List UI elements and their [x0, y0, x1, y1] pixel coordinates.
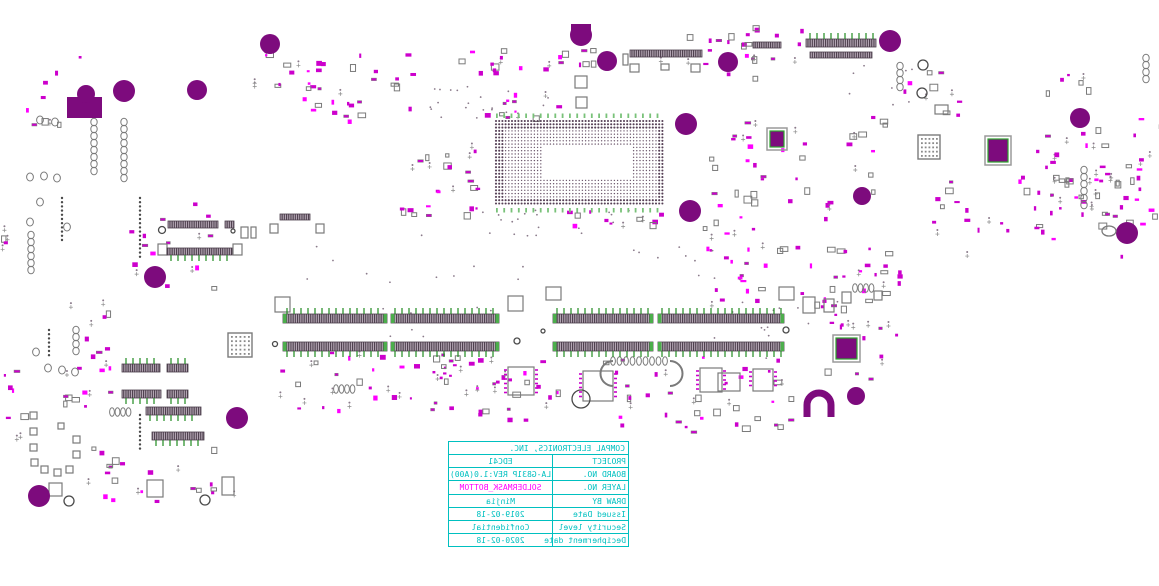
- bga-ball-pad: [658, 133, 660, 135]
- bga-ball-pad: [627, 186, 628, 187]
- bga-ball-pad: [505, 176, 506, 177]
- bga-ball-pad: [658, 176, 660, 178]
- smd-pad: [514, 111, 516, 113]
- smd-pad: [410, 397, 412, 399]
- component-outline: [233, 244, 242, 255]
- bga-ball-pad: [611, 140, 612, 141]
- fiducial-cross: [1088, 181, 1092, 185]
- bga-ball-pad: [655, 150, 656, 151]
- bga-ball-pad: [601, 127, 603, 129]
- bga-ball-pad: [652, 153, 653, 154]
- bga-ball-pad: [511, 137, 512, 138]
- smd-pad: [747, 247, 749, 251]
- bga-ball-pad: [524, 137, 525, 138]
- bga-ball-pad: [588, 130, 589, 131]
- bga-ball-pad: [563, 143, 564, 144]
- smd-pad: [753, 163, 757, 168]
- bga-ball-pad: [559, 137, 560, 138]
- via-dot: [297, 60, 299, 62]
- fiducial-cross: [69, 305, 73, 309]
- bga-ball-pad: [594, 120, 596, 122]
- bga-ball-pad: [575, 120, 577, 122]
- bga-ball-pad: [588, 134, 589, 135]
- smd-pad: [140, 490, 143, 493]
- smd-pad: [1018, 179, 1021, 183]
- bga-ball-pad: [540, 157, 541, 158]
- bga-ball-pad: [537, 183, 538, 184]
- bga-ball-pad: [515, 186, 516, 187]
- mounting-hole: [77, 85, 95, 103]
- bga-ball-pad: [661, 127, 663, 129]
- smd-pad: [1137, 176, 1141, 181]
- bga-ball-pad: [604, 180, 605, 181]
- bga-ball-pad: [633, 170, 634, 171]
- fiducial-cross: [846, 323, 850, 327]
- bga-ball-pad: [527, 167, 528, 168]
- bga-tick: [533, 208, 535, 213]
- bga-ball-pad: [610, 123, 612, 125]
- bga-ball-pad: [511, 127, 513, 129]
- bga-ball-pad: [505, 120, 507, 122]
- component-outline: [1153, 214, 1158, 219]
- bga-ball-pad: [505, 143, 506, 144]
- bga-ball-pad: [521, 127, 523, 129]
- bga-ball-pad: [658, 143, 660, 145]
- bga-ball-pad: [521, 140, 522, 141]
- component-outline: [270, 224, 278, 233]
- component-outline: [72, 397, 79, 402]
- via-dot: [1093, 143, 1095, 145]
- bga-ball-pad: [649, 143, 650, 144]
- via-dot: [6, 235, 8, 237]
- via-dot: [19, 432, 21, 434]
- smd-pad: [646, 393, 650, 397]
- bga-ball-pad: [517, 202, 519, 204]
- bga-ball-pad: [562, 202, 564, 204]
- bga-ball-pad: [588, 190, 589, 191]
- bga-ball-pad: [597, 202, 599, 204]
- smd-pad: [1140, 223, 1146, 226]
- fiducial-cross: [1081, 76, 1085, 80]
- bga-ball-pad: [636, 127, 638, 129]
- bga-ball-pad: [546, 123, 548, 125]
- bga-ball-pad: [595, 196, 596, 197]
- bga-ball-pad: [598, 196, 599, 197]
- bga-ball-pad: [505, 173, 506, 174]
- via-dot: [608, 211, 610, 213]
- bga-ball-pad: [566, 180, 567, 181]
- bga-tick: [547, 114, 549, 119]
- test-point-dot: [48, 329, 50, 331]
- bga-ball-pad: [498, 199, 500, 201]
- bga-ball-pad: [582, 140, 583, 141]
- bga-ball-pad: [617, 143, 618, 144]
- bga-ball-pad: [518, 130, 519, 131]
- bga-ball-pad: [505, 134, 506, 135]
- smd-pad: [776, 359, 780, 363]
- via-dot: [1091, 201, 1093, 203]
- bga-ball-pad: [527, 170, 528, 171]
- horseshoe-cutout-mark: [807, 393, 831, 417]
- smd-pad: [490, 63, 494, 66]
- bga-ball-pad: [521, 173, 522, 174]
- via-dot: [460, 366, 462, 368]
- cpu-bga-footprint: [495, 114, 664, 213]
- via-dot: [465, 107, 467, 109]
- bga-ball-pad: [517, 120, 519, 122]
- bga-ball-pad: [565, 199, 567, 201]
- via-dot: [936, 229, 938, 231]
- bga-ball-pad: [498, 196, 500, 198]
- smd-pad: [774, 424, 778, 427]
- bga-ball-pad: [553, 127, 555, 129]
- bga-tick: [598, 208, 600, 213]
- bga-ball-pad: [495, 146, 497, 148]
- via-dot: [767, 326, 769, 328]
- smd-pad: [470, 51, 475, 54]
- bga-ball-pad: [639, 202, 641, 204]
- bga-ball-pad: [636, 163, 637, 164]
- smd-pad: [1081, 132, 1086, 136]
- fiducial-cross: [428, 165, 432, 169]
- smd-pad: [372, 368, 374, 371]
- component-outline: [827, 247, 835, 252]
- bga-ball-pad: [566, 186, 567, 187]
- smd-pad: [476, 188, 481, 190]
- bga-ball-pad: [508, 143, 509, 144]
- bga-ball-pad: [521, 180, 522, 181]
- component-outline: [779, 287, 794, 300]
- bga-ball-pad: [511, 196, 512, 197]
- bga-ball-pad: [505, 183, 506, 184]
- oval-pad: [91, 125, 97, 133]
- component-outline: [426, 155, 429, 161]
- bga-tick: [554, 114, 556, 119]
- via-dot: [883, 281, 885, 283]
- bga-ball-pad: [495, 166, 497, 168]
- bga-ball-pad: [607, 127, 609, 129]
- oval-pad: [126, 408, 131, 416]
- smd-pad: [798, 42, 801, 46]
- bga-ball-pad: [604, 123, 606, 125]
- fiducial-cross: [761, 245, 765, 249]
- smd-pad: [558, 55, 562, 59]
- smd-pad: [337, 409, 340, 413]
- component-outline: [869, 173, 873, 177]
- bga-ball-pad: [527, 193, 528, 194]
- smd-pad: [297, 407, 301, 409]
- bga-ball-pad: [630, 130, 631, 131]
- via-dot: [1059, 197, 1061, 199]
- bga-ball-pad: [537, 130, 538, 131]
- bga-ball-pad: [623, 143, 624, 144]
- qfn-ball-pad: [240, 340, 242, 342]
- qfn-ball-pad: [929, 138, 931, 140]
- smd-pad: [841, 323, 844, 326]
- bga-ball-pad: [598, 134, 599, 135]
- via-dot: [1095, 189, 1097, 191]
- component-outline: [350, 65, 355, 72]
- bga-ball-pad: [501, 160, 503, 162]
- bga-ball-pad: [579, 137, 580, 138]
- component-outline: [92, 447, 96, 450]
- oval-pad: [121, 174, 127, 182]
- smd-pad: [834, 314, 837, 316]
- fiducial-cross: [880, 362, 884, 366]
- bga-ball-pad: [531, 176, 532, 177]
- component-outline: [687, 35, 693, 41]
- component-outline: [30, 428, 37, 435]
- bga-ball-pad: [514, 123, 516, 125]
- component-outline: [316, 224, 324, 233]
- bga-ball-pad: [643, 180, 644, 181]
- bga-ball-pad: [543, 183, 544, 184]
- bga-ball-pad: [585, 134, 586, 135]
- bga-ball-pad: [649, 170, 650, 171]
- mounting-hole: [570, 24, 592, 46]
- smd-pad: [508, 378, 512, 381]
- bga-ball-pad: [598, 130, 599, 131]
- bga-ball-pad: [572, 143, 573, 144]
- via-dot: [102, 299, 104, 301]
- qfn-ball-pad: [921, 147, 923, 149]
- bga-ball-pad: [565, 127, 567, 129]
- qfn-ball-pad: [248, 349, 250, 351]
- bga-ball-pad: [534, 160, 535, 161]
- smd-pad: [1120, 255, 1123, 259]
- bga-ball-pad: [643, 134, 644, 135]
- component-outline: [713, 165, 718, 170]
- bga-ball-pad: [566, 134, 567, 135]
- bga-ball-pad: [594, 127, 596, 129]
- bga-ball-pad: [508, 150, 509, 151]
- connector-key: [496, 342, 500, 351]
- bga-ball-pad: [655, 170, 656, 171]
- bga-ball-pad: [556, 134, 557, 135]
- decipherment-date-value: 2020-02-18: [449, 534, 552, 546]
- bga-ball-pad: [495, 176, 497, 178]
- bga-ball-pad: [639, 123, 641, 125]
- title-block-row-security-level: Security level Confidential: [449, 520, 628, 533]
- fiducial-cross: [882, 284, 886, 288]
- via-dot: [279, 391, 281, 393]
- smd-pad: [469, 206, 474, 211]
- bga-ball-pad: [601, 143, 602, 144]
- bga-ball-pad: [601, 196, 602, 197]
- fiducial-cross: [88, 393, 92, 397]
- bga-ball-pad: [562, 120, 564, 122]
- bga-ball-pad: [658, 196, 660, 198]
- bga-ball-pad: [511, 170, 512, 171]
- via-dot: [387, 385, 389, 387]
- smd-pad: [543, 67, 548, 71]
- bga-ball-pad: [614, 193, 615, 194]
- bga-ball-pad: [540, 183, 541, 184]
- bga-ball-pad: [521, 160, 522, 161]
- smd-pad: [82, 391, 87, 395]
- bga-ball-pad: [655, 199, 657, 201]
- bga-ball-pad: [623, 196, 624, 197]
- bga-ball-pad: [508, 127, 510, 129]
- smd-pad: [579, 63, 581, 68]
- test-point-dot: [139, 243, 141, 245]
- bga-ball-pad: [553, 134, 554, 135]
- bga-ball-pad: [550, 137, 551, 138]
- bga-ball-pad: [633, 183, 634, 184]
- bga-ball-pad: [588, 140, 589, 141]
- bga-tick: [503, 208, 505, 213]
- bga-ball-pad: [563, 130, 564, 131]
- smd-pad: [898, 281, 901, 286]
- bga-ball-pad: [655, 134, 656, 135]
- oval-pad: [643, 357, 648, 365]
- via-dot: [440, 116, 442, 118]
- bga-ball-pad: [630, 193, 631, 194]
- oval-hole: [1102, 226, 1116, 236]
- smd-pad: [414, 364, 420, 368]
- bga-ball-pad: [559, 193, 560, 194]
- bga-ball-pad: [501, 173, 503, 175]
- bga-ball-pad: [543, 130, 544, 131]
- bga-ball-pad: [623, 183, 624, 184]
- bga-ball-pad: [649, 137, 650, 138]
- bga-ball-pad: [642, 127, 644, 129]
- bga-ball-pad: [636, 167, 637, 168]
- bga-ball-pad: [661, 156, 663, 158]
- bga-ball-pad: [562, 123, 564, 125]
- bga-ball-pad: [534, 186, 535, 187]
- bga-ball-pad: [655, 180, 656, 181]
- smd-pad: [739, 216, 742, 218]
- component-outline: [358, 113, 366, 118]
- bga-ball-pad: [534, 147, 535, 148]
- smd-pad: [426, 214, 431, 217]
- fiducial-cross: [544, 94, 548, 98]
- smd-pad: [99, 369, 104, 373]
- bga-ball-pad: [495, 160, 497, 162]
- bga-ball-pad: [585, 186, 586, 187]
- via-dot: [434, 88, 436, 90]
- bga-tick: [518, 114, 520, 119]
- issued-date-label: Issued Date: [552, 508, 628, 520]
- via-dot: [137, 488, 139, 490]
- bga-ball-pad: [639, 180, 640, 181]
- bga-ball-pad: [649, 140, 650, 141]
- via-dot: [498, 214, 500, 216]
- bga-ball-pad: [643, 186, 644, 187]
- bga-ball-pad: [643, 160, 644, 161]
- via-dot: [517, 278, 519, 280]
- oval-pad: [91, 132, 97, 140]
- via-dot: [453, 275, 455, 277]
- smd-pad: [800, 29, 803, 34]
- bga-ball-pad: [553, 183, 554, 184]
- bga-ball-pad: [636, 157, 637, 158]
- bga-ball-pad: [630, 134, 631, 135]
- smd-pad: [478, 413, 482, 417]
- oval-pad: [858, 284, 863, 292]
- bga-tick: [627, 114, 629, 119]
- bga-ball-pad: [556, 202, 558, 204]
- smd-pad: [108, 391, 113, 394]
- via-dot: [439, 89, 441, 91]
- bga-ball-pad: [611, 134, 612, 135]
- bga-ball-pad: [501, 136, 503, 138]
- bga-ball-pad: [505, 140, 506, 141]
- oval-pad: [28, 252, 34, 260]
- via-dot: [678, 246, 680, 248]
- component-outline: [21, 414, 29, 420]
- bga-ball-pad: [565, 120, 567, 122]
- bga-ball-pad: [646, 143, 647, 144]
- bga-ball-pad: [498, 193, 500, 195]
- bga-ball-pad: [515, 150, 516, 151]
- smd-pad: [303, 97, 307, 101]
- via-dot: [966, 251, 968, 253]
- oval-pad: [37, 198, 44, 206]
- bga-ball-pad: [582, 196, 583, 197]
- bga-ball-pad: [623, 193, 624, 194]
- bga-ball-pad: [537, 180, 538, 181]
- component-outline: [284, 63, 291, 67]
- component-outline: [575, 76, 587, 88]
- via-dot: [527, 235, 529, 237]
- via-dot: [753, 54, 755, 56]
- via-dot: [911, 68, 913, 70]
- smd-pad: [716, 39, 722, 42]
- via-dot: [837, 301, 839, 303]
- smd-pad: [620, 423, 624, 427]
- bga-ball-pad: [652, 196, 653, 197]
- bga-ball-pad: [540, 176, 541, 177]
- bga-ball-pad: [559, 180, 560, 181]
- component-outline: [147, 480, 163, 497]
- smd-pad: [703, 63, 708, 65]
- oval-pad: [1081, 180, 1087, 188]
- bga-ball-pad: [585, 199, 587, 201]
- connector-body: [225, 221, 234, 228]
- smd-pad: [559, 61, 564, 64]
- bga-ball-pad: [620, 193, 621, 194]
- smd-pad: [348, 119, 352, 123]
- bga-ball-pad: [511, 190, 512, 191]
- qfn-ball-pad: [244, 353, 246, 355]
- smd-pad: [668, 392, 673, 395]
- bga-ball-pad: [569, 120, 571, 122]
- smd-pad: [408, 208, 414, 212]
- bga-ball-pad: [559, 183, 560, 184]
- bga-ball-pad: [559, 123, 561, 125]
- bga-tick: [540, 114, 542, 119]
- component-outline: [630, 64, 639, 72]
- component-outline: [197, 488, 202, 492]
- bga-ball-pad: [629, 120, 631, 122]
- bga-ball-pad: [633, 137, 634, 138]
- smd-pad: [771, 58, 775, 61]
- smd-pad: [800, 292, 804, 295]
- bga-ball-pad: [633, 193, 634, 194]
- connector-body: [280, 214, 310, 220]
- bga-ball-pad: [598, 137, 599, 138]
- via-dot: [389, 281, 391, 283]
- bga-ball-pad: [540, 167, 541, 168]
- bga-tick: [576, 114, 578, 119]
- bga-ball-pad: [633, 167, 634, 168]
- bga-ball-pad: [524, 143, 525, 144]
- bga-ball-pad: [553, 130, 554, 131]
- bga-ball-pad: [601, 186, 602, 187]
- component-outline: [841, 306, 846, 313]
